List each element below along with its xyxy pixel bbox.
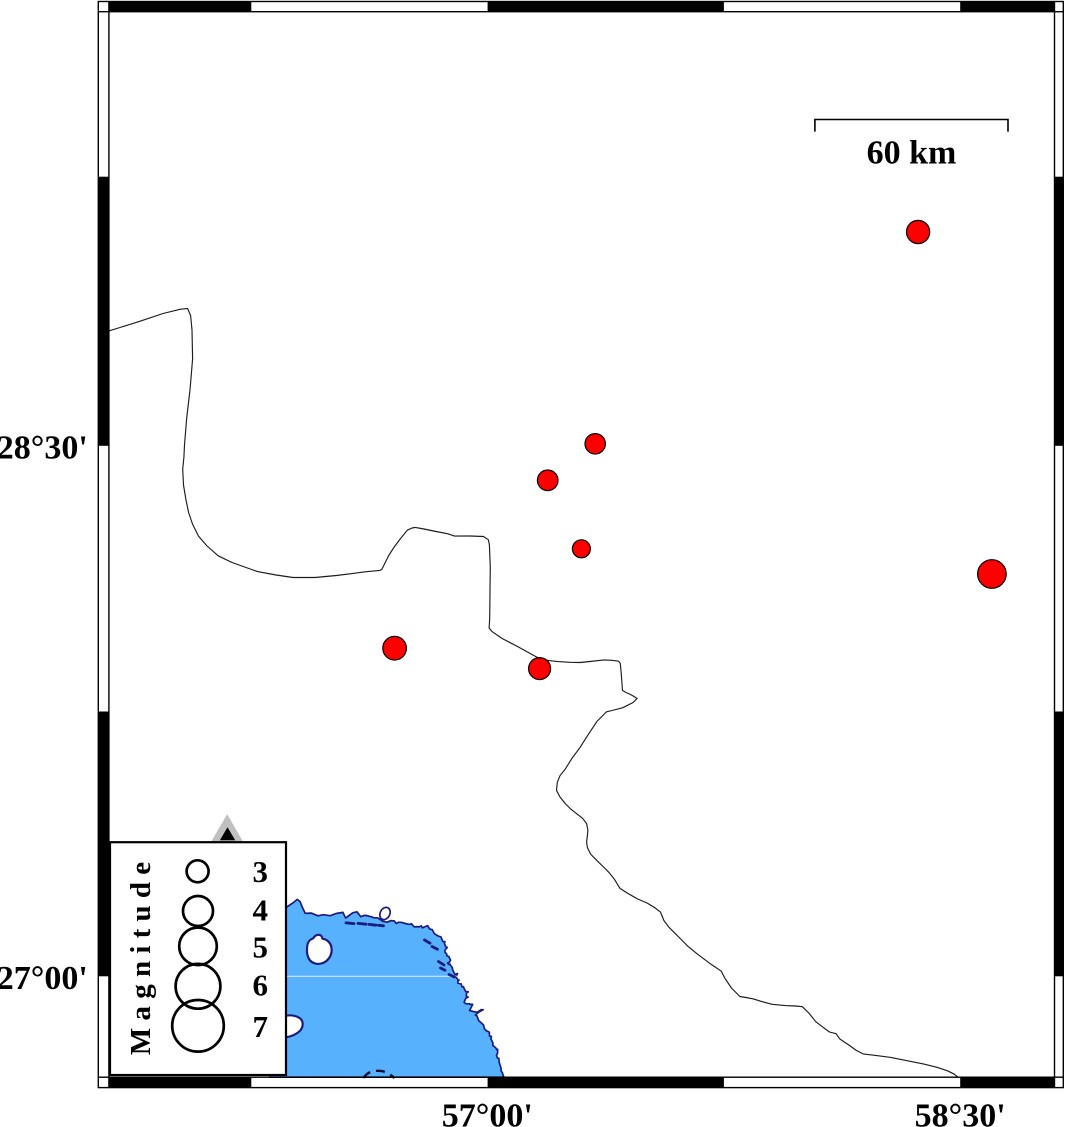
svg-text:60 km: 60 km: [867, 134, 957, 171]
svg-text:M a g n i t u d e: M a g n i t u d e: [125, 862, 157, 1055]
svg-text:5: 5: [252, 929, 268, 964]
svg-text:6: 6: [252, 967, 268, 1002]
svg-text:57°00': 57°00': [442, 1097, 533, 1127]
svg-text:7: 7: [252, 1009, 268, 1044]
svg-text:3: 3: [252, 854, 268, 889]
svg-text:28°30': 28°30': [0, 429, 88, 466]
svg-text:27°00': 27°00': [0, 960, 88, 997]
svg-text:58°30': 58°30': [915, 1097, 1006, 1127]
svg-text:4: 4: [252, 892, 268, 927]
